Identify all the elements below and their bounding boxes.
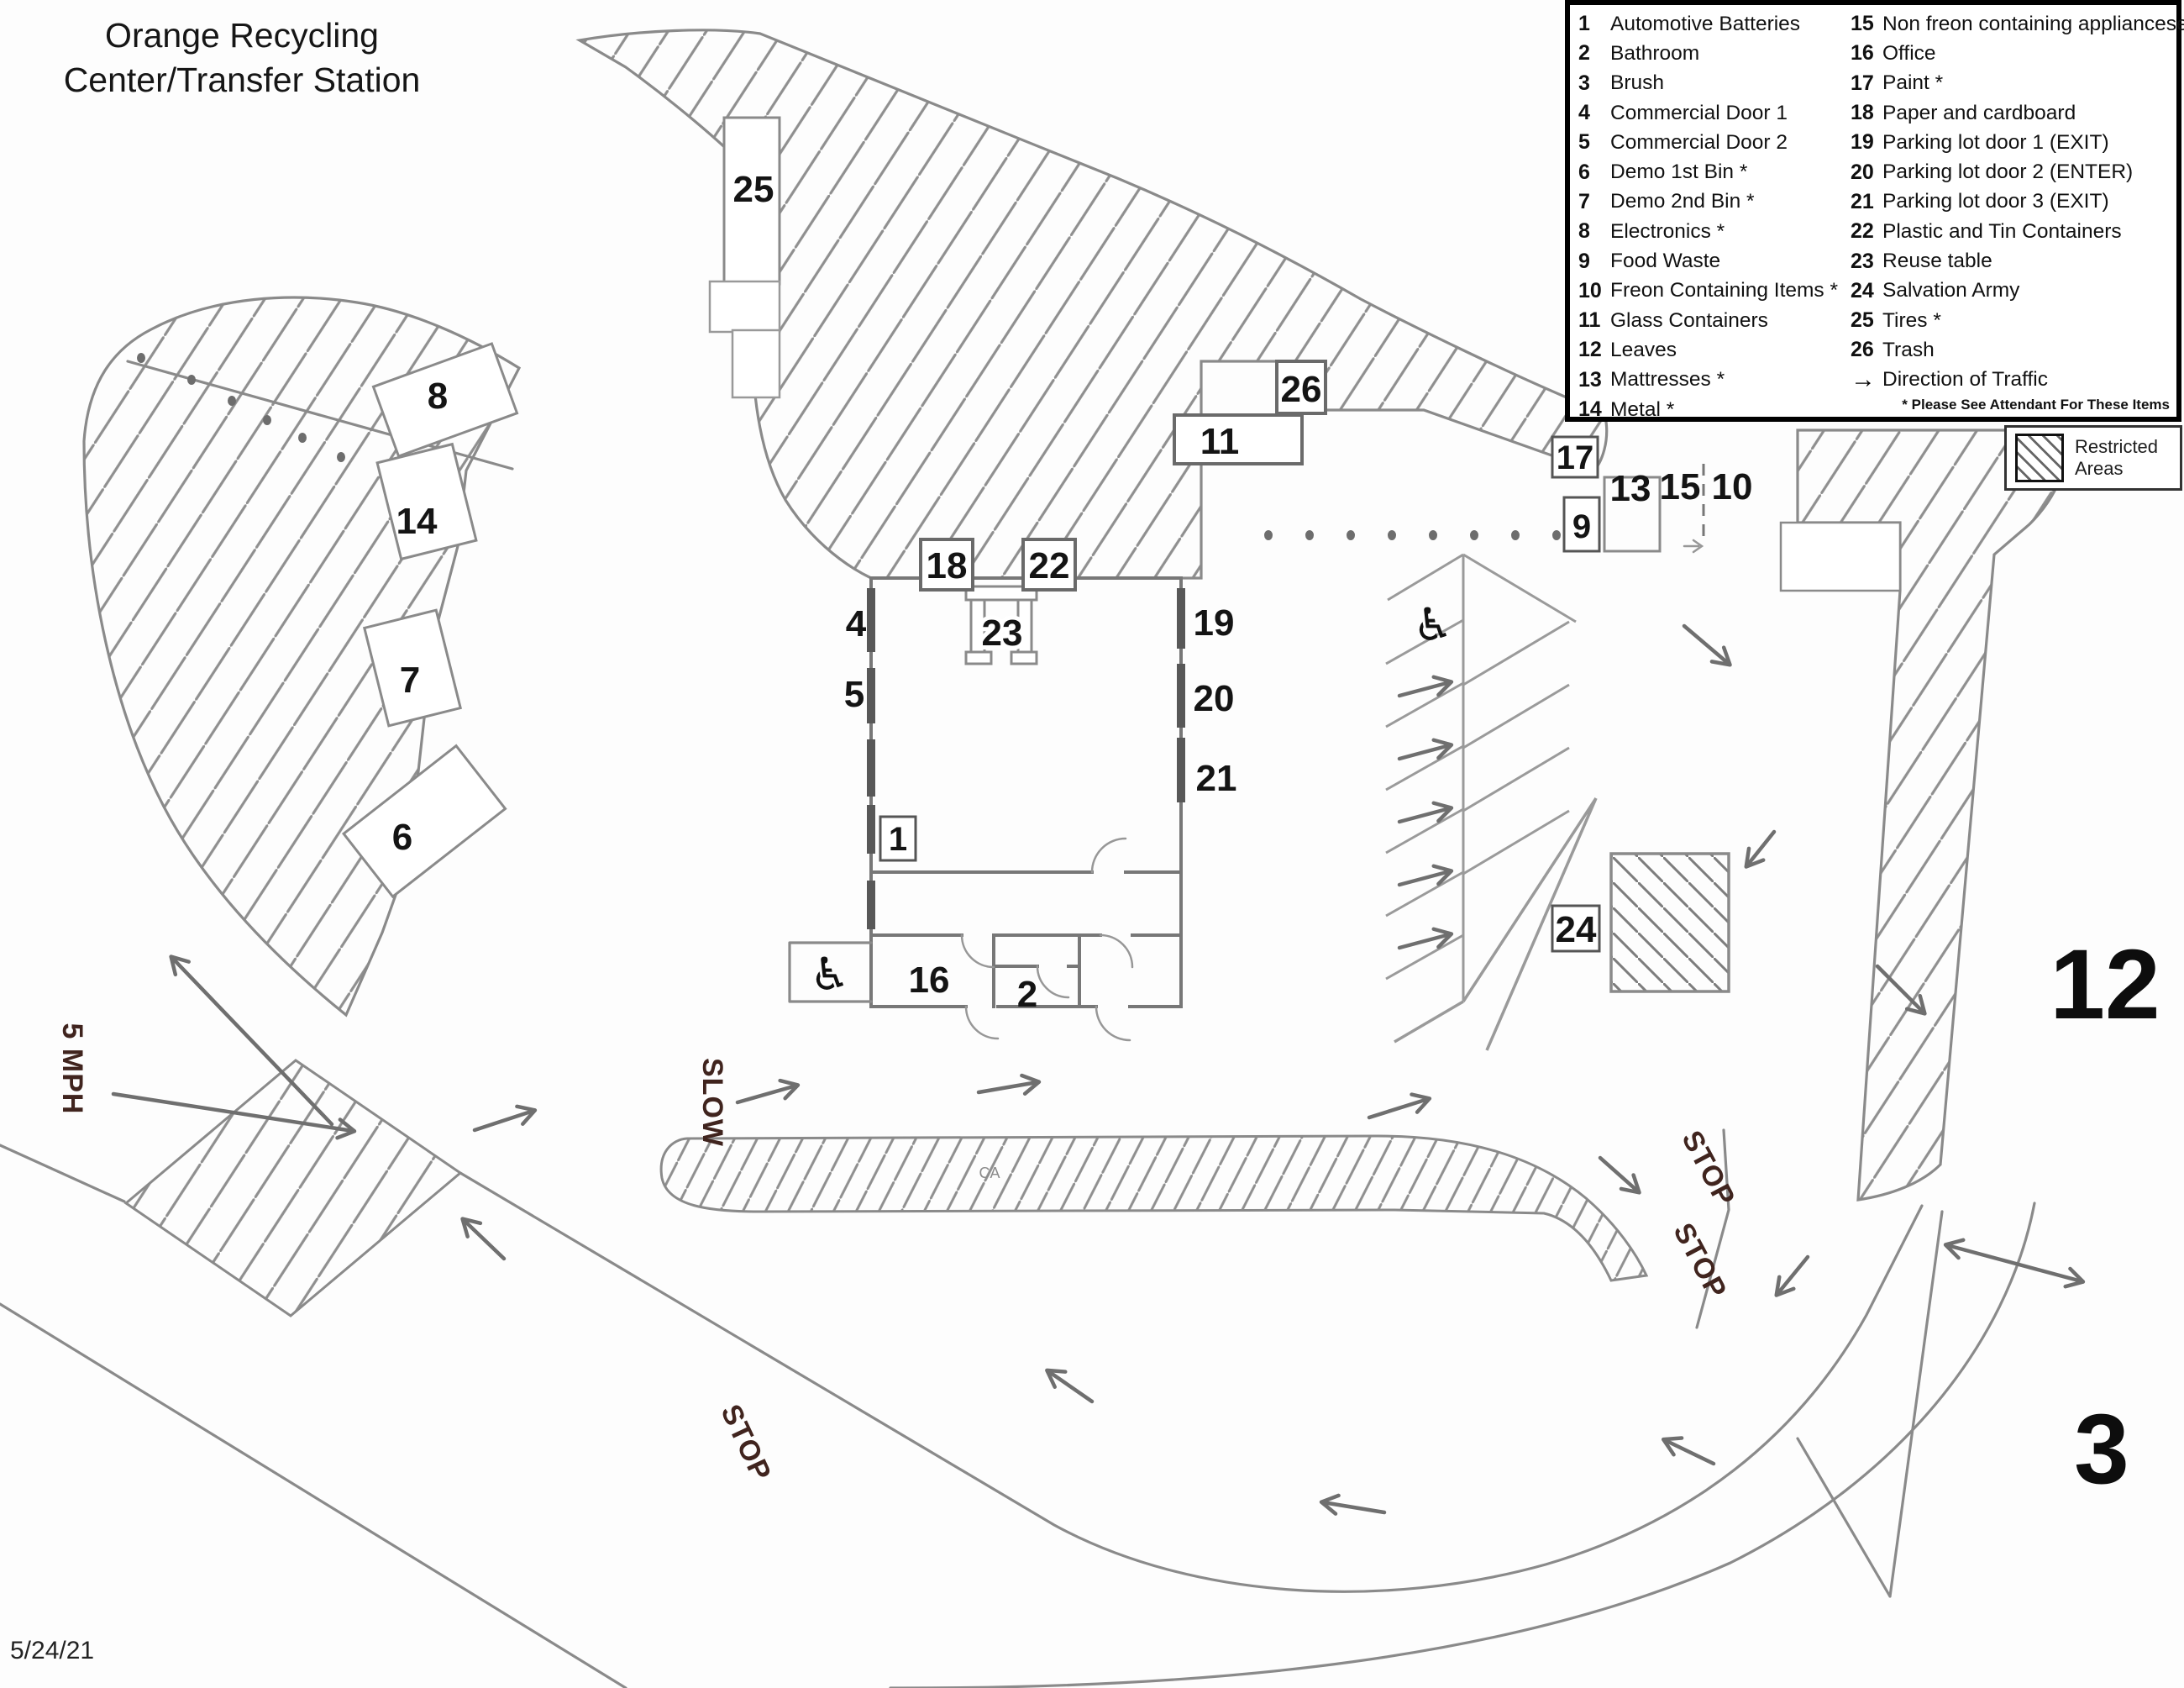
legend-direction: →Direction of Traffic [1851,365,2184,395]
label-mattresses: 13 [1610,468,1651,509]
legend-column-2: 15Non freon containing appliancese * 16O… [1851,9,2184,395]
direction-arrow-icon: → [1851,365,1882,394]
label-leaves: 12 [2050,929,2160,1040]
legend-item: 11Glass Containers [1578,306,1838,335]
legend-item: 17Paint * [1851,69,2184,98]
label-non-freon: 15 [1660,466,1701,507]
legend-item: 24Salvation Army [1851,276,2184,306]
door-arcs [962,839,1132,1040]
legend-item: 2Bathroom [1578,39,1838,68]
legend-item: 22Plastic and Tin Containers [1851,217,2184,246]
speed-limit-text: 5 MPH [56,1023,88,1115]
stop-text-3: STOP [714,1400,777,1486]
legend-item: 4Commercial Door 1 [1578,98,1838,128]
tires-bay [710,118,780,397]
legend-item: 19Parking lot door 1 (EXIT) [1851,128,2184,157]
restricted-areas-key: Restricted Areas [2004,425,2182,491]
legend-item: 26Trash [1851,335,2184,365]
site-map: ♿ ♿ [0,0,2184,1688]
legend: 1Automotive Batteries 2Bathroom 3Brush 4… [1565,0,2181,422]
road-island [126,1060,460,1316]
legend-item: 7Demo 2nd Bin * [1578,187,1838,217]
map-date: 5/24/21 [10,1637,94,1665]
legend-item: 14Metal * [1578,395,1838,424]
legend-item: 10Freon Containing Items * [1578,276,1838,306]
legend-column-1: 1Automotive Batteries 2Bathroom 3Brush 4… [1578,9,1838,424]
ca-text: CA [979,1165,1000,1181]
label-reuse-table: 23 [982,613,1023,654]
label-demo1: 6 [392,817,412,858]
median-strip [661,1136,1646,1280]
wheelchair-icon: ♿ [810,948,850,1001]
legend-item: 3Brush [1578,69,1838,98]
legend-footnote: * Please See Attendant For These Items [1902,397,2170,413]
label-comm-door2: 5 [844,674,864,715]
map-title-line2: Center/Transfer Station [32,58,452,103]
handicap-ramp: ♿ [790,943,871,1002]
legend-item: 20Parking lot door 2 (ENTER) [1851,157,2184,187]
salvation-army-area [1611,854,1729,991]
legend-item: 9Food Waste [1578,246,1838,276]
legend-item: 16Office [1851,39,2184,68]
map-title-line1: Orange Recycling [32,13,452,58]
label-lot-door2: 20 [1194,678,1235,719]
label-brush: 3 [2074,1394,2129,1505]
label-trash: 26 [1281,369,1322,410]
label-comm-door1: 4 [846,603,867,644]
label-office: 16 [909,960,950,1001]
legend-item: 12Leaves [1578,335,1838,365]
label-lot-door3: 21 [1196,758,1237,799]
right-band-notch [1781,523,1900,591]
wheelchair-parking-icon: ♿ [1413,598,1453,651]
parking-arrows [1399,682,1450,948]
label-paint: 17 [1557,439,1594,476]
label-metal: 14 [396,501,438,542]
hatch-swatch-icon [2015,434,2064,482]
legend-item: 13Mattresses * [1578,365,1838,395]
label-batteries: 1 [889,821,907,858]
legend-item: 5Commercial Door 2 [1578,128,1838,157]
label-food-waste: 9 [1572,508,1591,545]
legend-item: 23Reuse table [1851,246,2184,276]
legend-item: 1Automotive Batteries [1578,9,1838,39]
stop-text-1: STOP [1675,1126,1741,1212]
map-title: Orange Recycling Center/Transfer Station [32,13,452,103]
restricted-areas-label: Restricted Areas [2075,436,2180,480]
legend-item: 15Non freon containing appliancese * [1851,9,2184,39]
legend-item: 6Demo 1st Bin * [1578,157,1838,187]
legend-item: 25Tires * [1851,306,2184,335]
label-bathroom: 2 [1017,974,1037,1015]
label-glass: 11 [1200,421,1240,462]
legend-item: 21Parking lot door 3 (EXIT) [1851,187,2184,217]
legend-item: 8Electronics * [1578,217,1838,246]
label-freon: 10 [1712,466,1753,507]
label-tires: 25 [733,169,774,210]
label-lot-door1: 19 [1194,602,1235,644]
slow-text: SLOW [696,1058,728,1147]
label-plastic-tin: 22 [1029,545,1070,586]
legend-item: 18Paper and cardboard [1851,98,2184,128]
label-demo2: 7 [400,660,420,701]
dots-row [1264,530,1561,540]
label-paper: 18 [927,545,968,586]
label-electronics: 8 [428,376,448,417]
label-salvation: 24 [1556,909,1597,950]
